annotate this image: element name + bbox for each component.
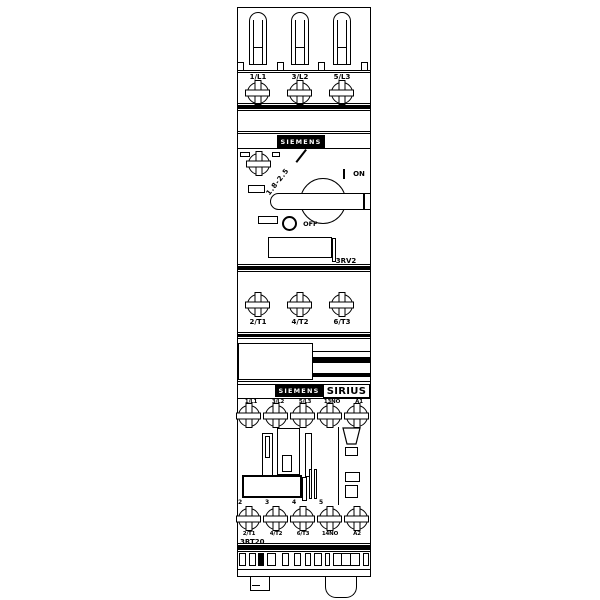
test-button bbox=[258, 216, 278, 224]
divider-line bbox=[237, 271, 371, 272]
mounting-foot-tab bbox=[325, 577, 357, 598]
off-symbol-icon bbox=[282, 216, 297, 231]
divider-line bbox=[237, 338, 371, 339]
base-slot bbox=[305, 553, 311, 566]
screw-terminal-icon bbox=[319, 508, 341, 530]
divider-line bbox=[237, 110, 371, 111]
link-module-cover bbox=[238, 343, 313, 380]
breaker-load-terminal-label: 6/T3 bbox=[333, 318, 350, 326]
armature-slot-inner bbox=[265, 436, 270, 458]
moving-core-inner bbox=[282, 455, 292, 472]
screw-terminal-icon bbox=[265, 508, 287, 530]
aux-contact-slot bbox=[345, 447, 358, 456]
screw-terminal-icon bbox=[292, 508, 314, 530]
motor-starter-drawing: 1/L1 3/L2 5/L3 SIEMENS 1.8-2.5 ON OFF 3R… bbox=[237, 7, 371, 598]
busbar-pin bbox=[291, 12, 309, 65]
screw-terminal-icon bbox=[346, 405, 368, 427]
contactor-label-window-tab bbox=[302, 477, 307, 501]
base-slot-line bbox=[341, 554, 342, 565]
base-slot bbox=[314, 553, 322, 566]
on-symbol-icon bbox=[343, 169, 345, 179]
divider-line bbox=[237, 569, 371, 570]
screw-terminal-icon bbox=[238, 405, 260, 427]
separator-band bbox=[313, 373, 371, 377]
base-slot bbox=[239, 553, 246, 566]
on-position-marking: ON bbox=[343, 163, 365, 182]
pole-number: 4 bbox=[292, 500, 296, 506]
screw-terminal-icon bbox=[289, 82, 311, 104]
din-rail-clip-tab bbox=[250, 577, 270, 591]
screw-terminal-icon bbox=[346, 508, 368, 530]
label-window bbox=[268, 237, 332, 258]
base-slot bbox=[258, 553, 264, 566]
separator-band bbox=[313, 357, 371, 363]
screw-terminal-icon bbox=[331, 294, 353, 316]
contactor-bottom-terminal-label: 6/T3 bbox=[297, 531, 310, 537]
contactor-label-window bbox=[242, 475, 302, 498]
brand-label-contactor: SIEMENS bbox=[275, 385, 323, 397]
screw-terminal-icon bbox=[319, 405, 341, 427]
contactor-bottom-terminal-label: 4/T2 bbox=[270, 531, 283, 537]
base-slot bbox=[282, 553, 289, 566]
screw-terminal-icon bbox=[247, 294, 269, 316]
divider-line bbox=[237, 551, 371, 552]
divider-line bbox=[237, 103, 371, 104]
contactor-bottom-terminal-label: 14NO bbox=[322, 531, 338, 537]
screw-terminal-icon bbox=[238, 508, 260, 530]
screw-terminal-icon bbox=[331, 82, 353, 104]
clip-notch-line bbox=[252, 585, 260, 586]
series-name-label: SIRIUS bbox=[323, 384, 370, 398]
divider-line bbox=[237, 264, 371, 265]
screw-terminal-icon bbox=[292, 405, 314, 427]
aux-contact-slot bbox=[345, 485, 358, 498]
divider-line bbox=[237, 70, 371, 71]
breaker-load-terminal-label: 4/T2 bbox=[291, 318, 308, 326]
handle-end-line bbox=[363, 194, 365, 209]
plunger-pin bbox=[309, 469, 312, 499]
base-slot bbox=[363, 553, 369, 566]
divider-line bbox=[237, 332, 371, 333]
base-slot-wide bbox=[333, 553, 360, 566]
divider-line bbox=[313, 351, 371, 352]
separator-band bbox=[237, 105, 371, 109]
brand-label-breaker: SIEMENS bbox=[277, 135, 325, 148]
base-slot bbox=[267, 553, 276, 566]
current-adjustment-dial-icon bbox=[248, 153, 270, 175]
off-position-marking: OFF bbox=[282, 213, 318, 232]
base-slot bbox=[294, 553, 301, 566]
screw-terminal-icon bbox=[265, 405, 287, 427]
pole-number: 5 bbox=[319, 500, 323, 506]
base-slot bbox=[249, 553, 256, 566]
busbar-pin bbox=[333, 12, 351, 65]
aux-contact-slot bbox=[345, 472, 360, 482]
separator-band bbox=[237, 266, 371, 270]
separator-band bbox=[237, 334, 371, 337]
pole-number: 3 bbox=[265, 500, 269, 506]
divider-line bbox=[237, 381, 371, 382]
divider-line bbox=[237, 133, 371, 134]
vent-slot bbox=[272, 152, 280, 157]
vent-slot bbox=[240, 152, 250, 157]
pole-number: 2 bbox=[238, 500, 242, 506]
aux-column-divider bbox=[338, 427, 339, 505]
divider-line bbox=[237, 131, 371, 132]
busbar-pin bbox=[249, 12, 267, 65]
rotary-handle bbox=[270, 193, 371, 210]
off-label: OFF bbox=[303, 220, 317, 228]
base-slot-line bbox=[350, 554, 351, 565]
base-slot bbox=[325, 553, 330, 566]
contactor-bottom-terminal-label: A2 bbox=[353, 531, 361, 537]
divider-line bbox=[237, 543, 371, 544]
face-slot bbox=[248, 185, 265, 193]
breaker-load-terminal-label: 2/T1 bbox=[249, 318, 266, 326]
plunger-pin bbox=[314, 469, 317, 499]
page-background: { "colors": { "line": "#000000", "backgr… bbox=[0, 0, 600, 600]
separator-band bbox=[237, 545, 371, 550]
contactor-bottom-terminal-label: 2/T1 bbox=[243, 531, 256, 537]
screw-terminal-icon bbox=[247, 82, 269, 104]
aux-contact-slot bbox=[342, 427, 361, 445]
screw-terminal-icon bbox=[289, 294, 311, 316]
on-label: ON bbox=[353, 170, 365, 178]
